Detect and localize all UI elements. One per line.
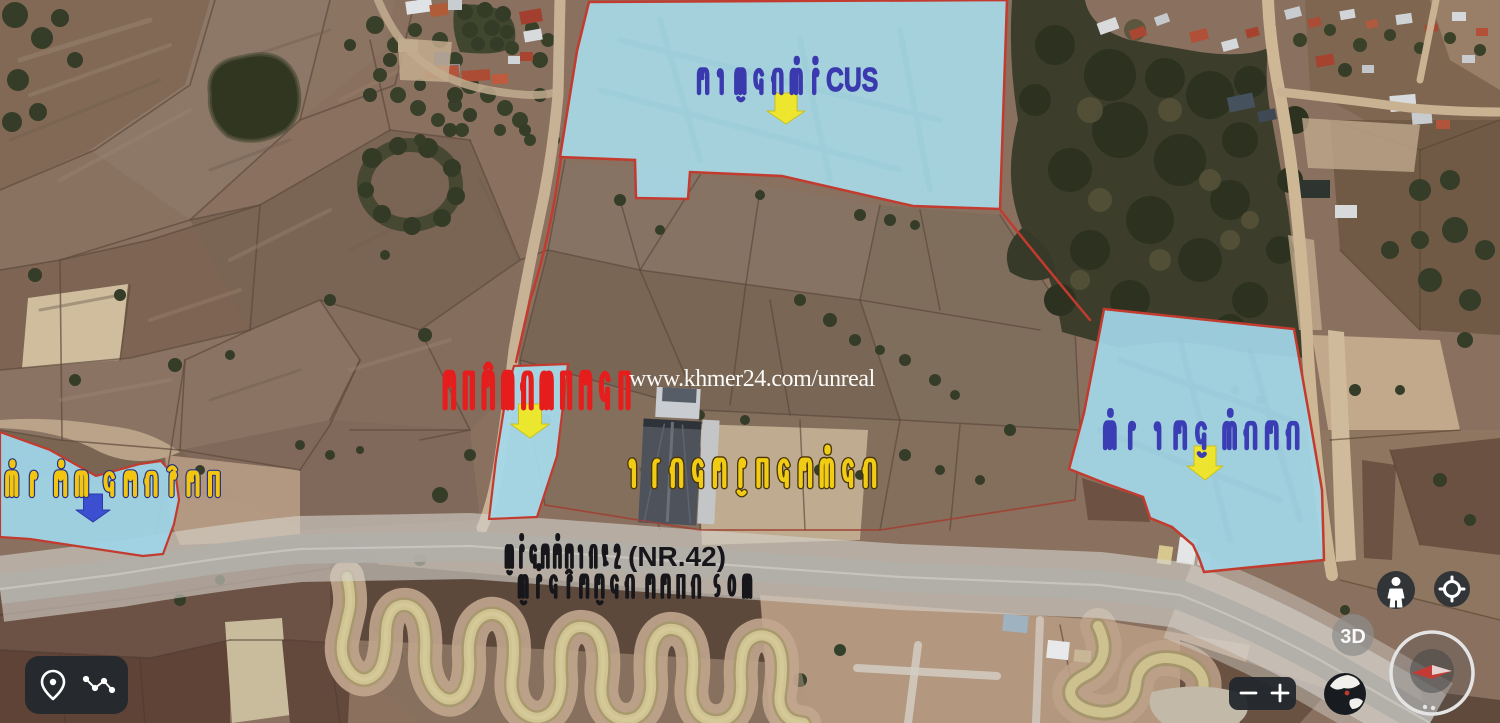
svg-text:www.khmer24.com/unreal: www.khmer24.com/unreal xyxy=(629,366,876,392)
svg-text:CUS: CUS xyxy=(826,63,878,99)
svg-text:3D: 3D xyxy=(1340,626,1366,648)
svg-text:(NR.42): (NR.42) xyxy=(628,541,726,572)
